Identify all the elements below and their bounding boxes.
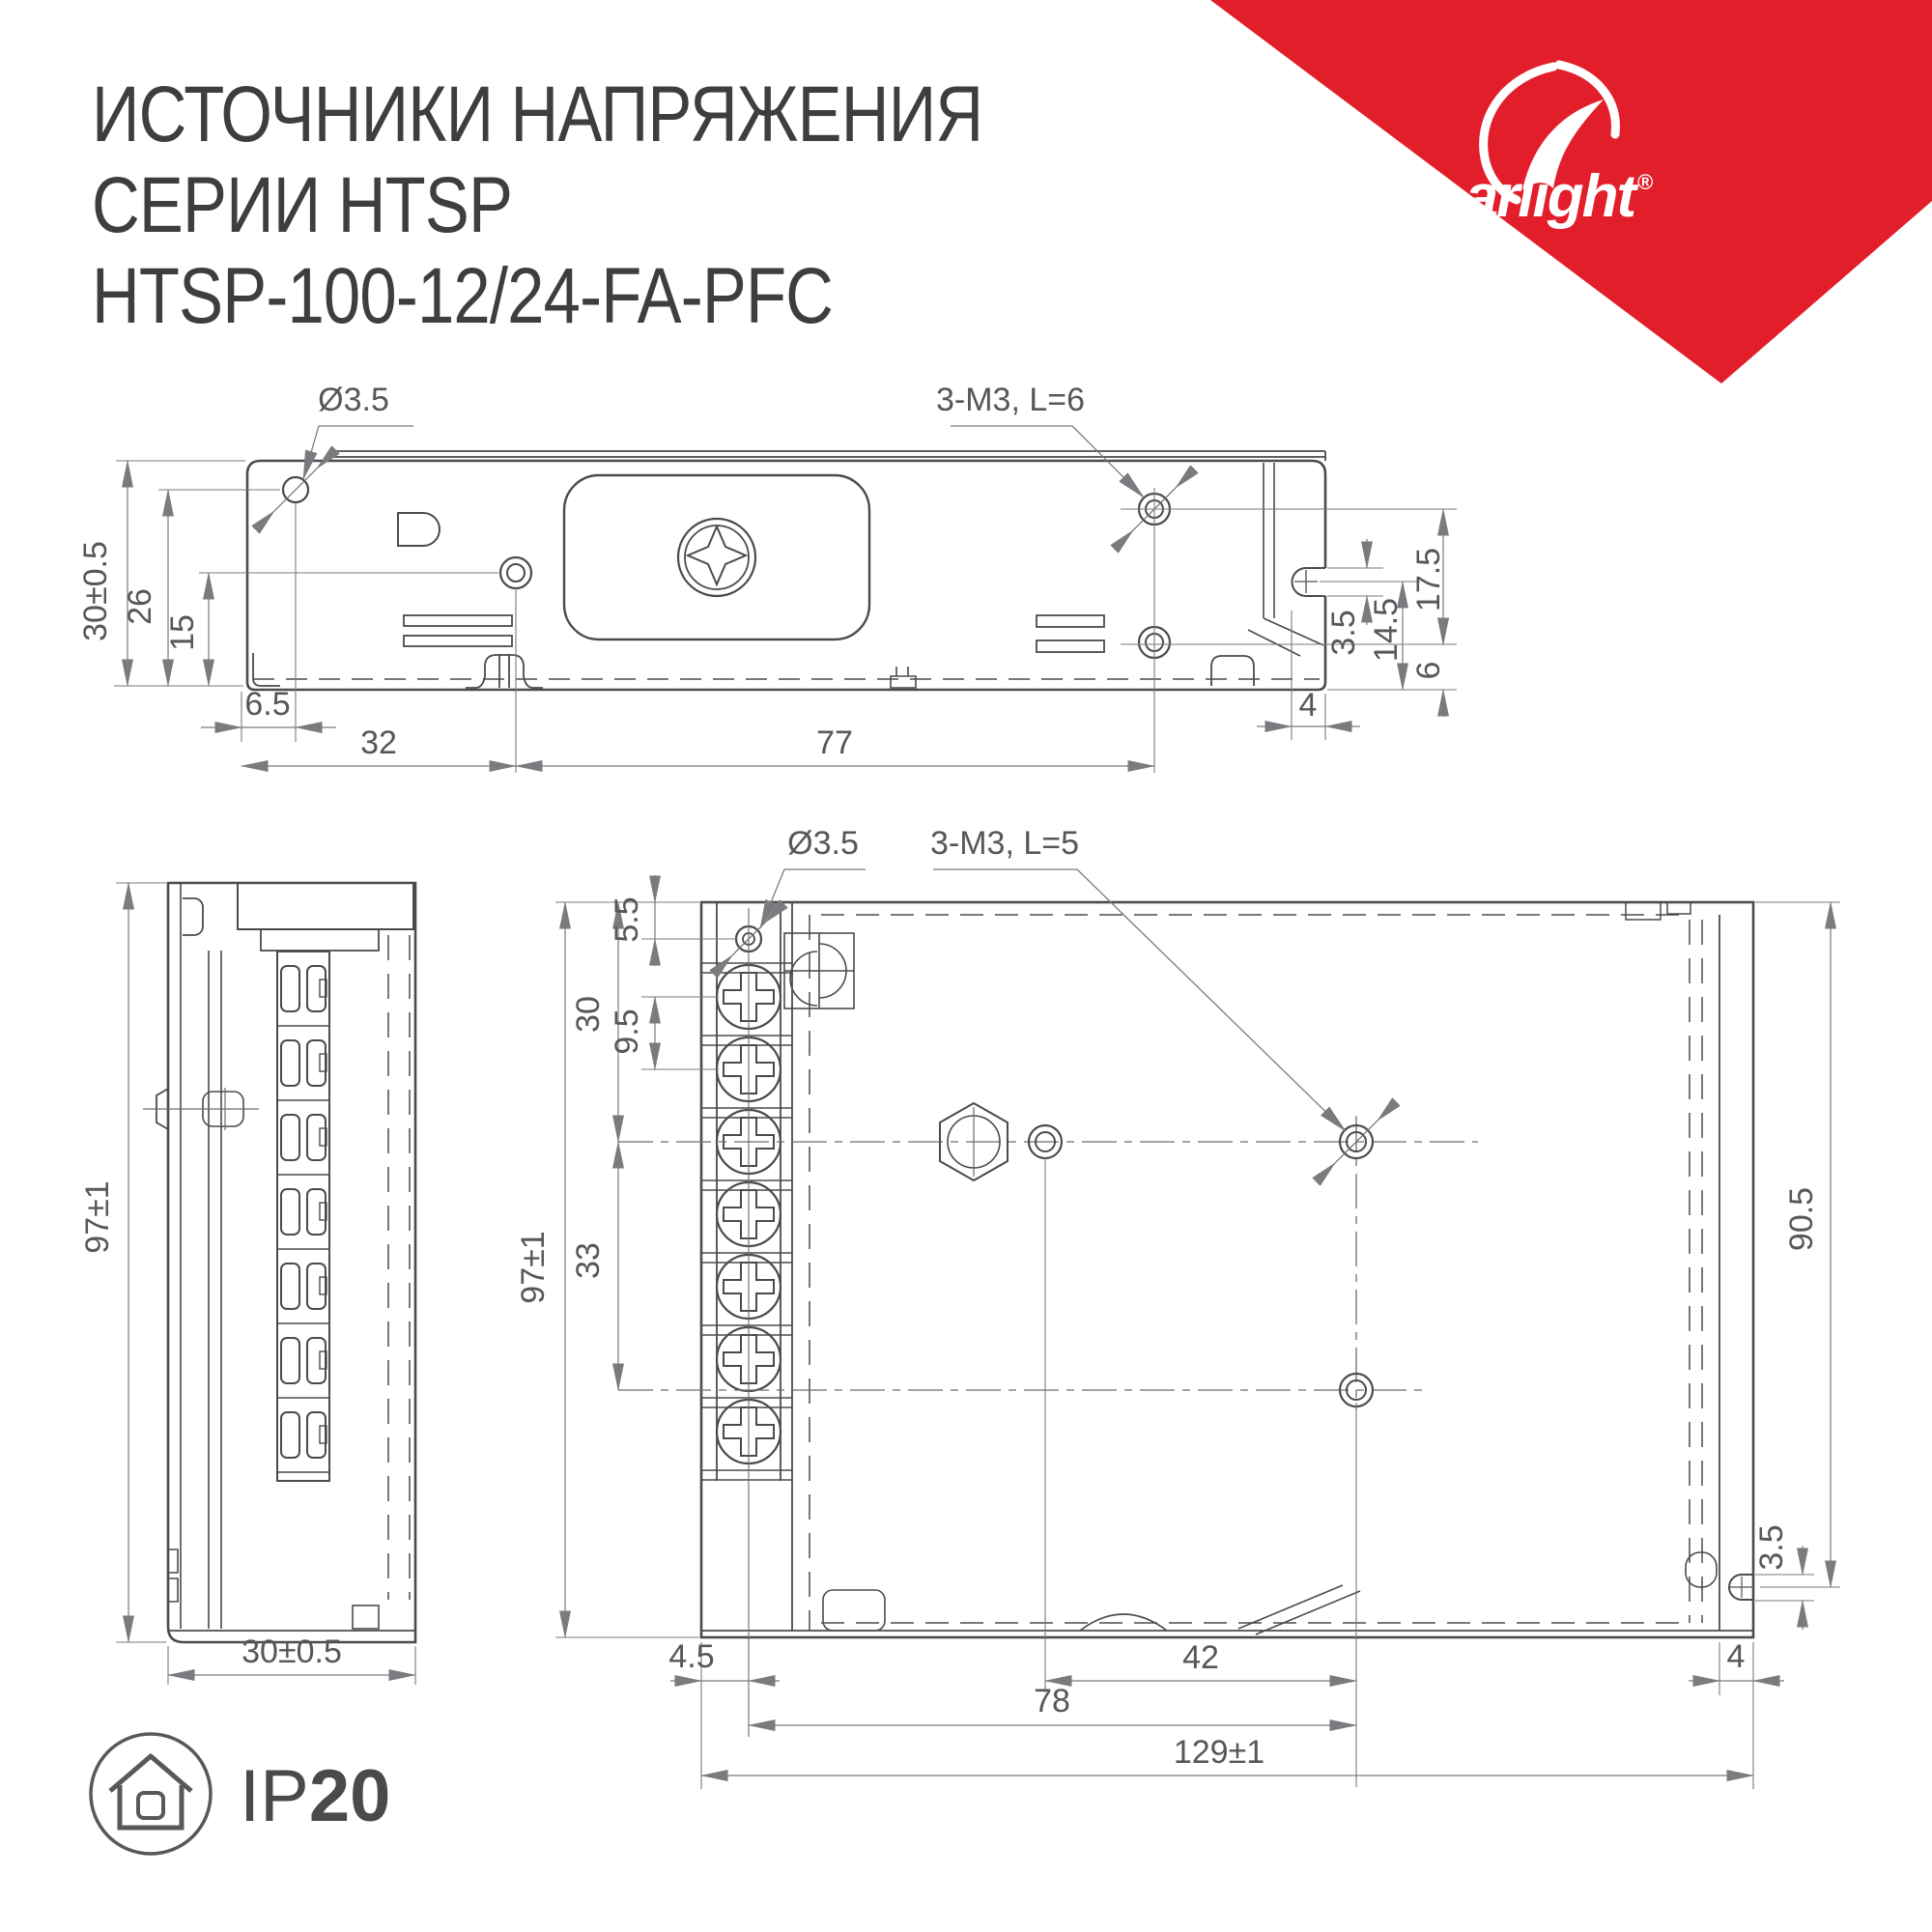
- dimension-label: 30±0.5: [77, 541, 114, 641]
- dimension-label: 97±1: [79, 1180, 116, 1253]
- dimension-label: 5.5: [609, 896, 645, 942]
- dimension-label: 78: [1034, 1683, 1070, 1719]
- dimension-label: 9.5: [609, 1009, 645, 1054]
- dimension-label: 6.5: [244, 686, 290, 723]
- dimension-label: 3-M3, L=6: [936, 382, 1085, 418]
- ip-prefix: IP: [240, 1755, 309, 1837]
- dimension-label: 3-M3, L=5: [930, 825, 1079, 862]
- ip20-icon: [91, 1734, 211, 1854]
- dimension-label: Ø3.5: [787, 825, 859, 862]
- dimension-label: 77: [816, 724, 853, 761]
- dimension-label: 26: [122, 588, 158, 625]
- dimension-label: 17.5: [1410, 548, 1447, 611]
- dimension-label: 90.5: [1783, 1187, 1820, 1251]
- title-line-3: HTSP-100-12/24-FA-PFC: [92, 251, 982, 342]
- dimension-label: 32: [360, 724, 397, 761]
- dimension-label: 4: [1727, 1638, 1746, 1675]
- dimension-label: 42: [1182, 1639, 1219, 1676]
- dimension-label: 30±0.5: [241, 1634, 342, 1670]
- dimension-label: 129±1: [1174, 1734, 1264, 1771]
- page-title: ИСТОЧНИКИ НАПРЯЖЕНИЯ СЕРИИ HTSP HTSP-100…: [92, 70, 982, 342]
- title-line-1: ИСТОЧНИКИ НАПРЯЖЕНИЯ: [92, 70, 982, 160]
- dimension-label: 33: [570, 1242, 607, 1279]
- end-view: [116, 883, 415, 1685]
- dimension-label: 3.5: [1325, 610, 1362, 655]
- side-view: [114, 426, 1457, 773]
- dimension-label: Ø3.5: [318, 382, 389, 418]
- dimension-label: 97±1: [515, 1231, 552, 1303]
- ip20-badge: IP20: [240, 1754, 390, 1838]
- dimension-label: 3.5: [1753, 1524, 1790, 1570]
- dimension-label: 14.5: [1368, 598, 1405, 662]
- brand-reg-mark: ®: [1637, 170, 1651, 194]
- title-line-2: СЕРИИ HTSP: [92, 160, 982, 251]
- datasheet-page: ИСТОЧНИКИ НАПРЯЖЕНИЯ СЕРИИ HTSP HTSP-100…: [0, 0, 1932, 1932]
- dimension-label: 4: [1299, 687, 1318, 724]
- dimension-label: 4.5: [668, 1638, 714, 1675]
- ip-value: 20: [309, 1755, 391, 1837]
- dimension-label: 6: [1410, 662, 1447, 680]
- dimension-label: 15: [164, 614, 201, 651]
- dimension-label: 30: [570, 996, 607, 1033]
